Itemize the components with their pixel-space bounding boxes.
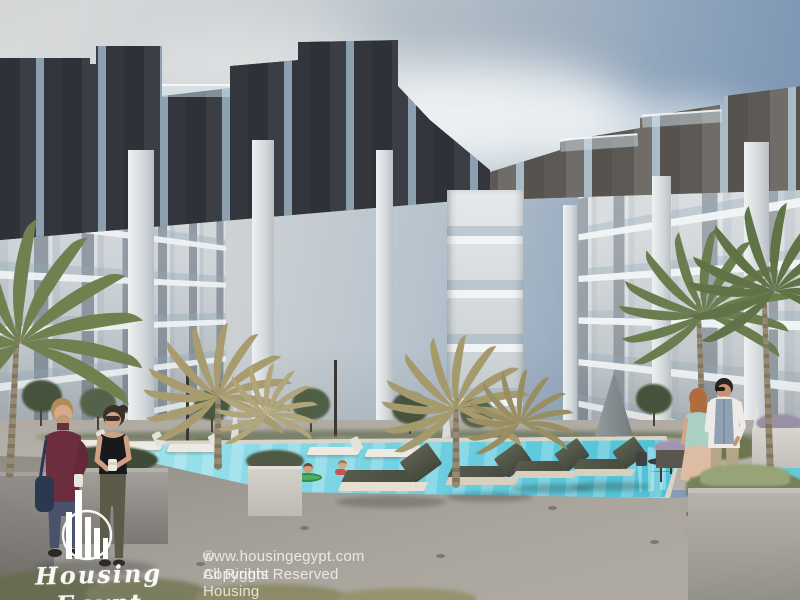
child-swimmer-head <box>338 460 347 469</box>
palm-tree-green <box>680 202 800 344</box>
tree-trunk <box>653 412 655 426</box>
deck-drain <box>548 506 557 510</box>
sun-lounger-frame <box>512 471 577 478</box>
deck-drain <box>300 526 309 530</box>
child-swimmer-head <box>303 463 313 473</box>
deck-drain <box>650 540 659 544</box>
lounger-shadow <box>336 496 446 508</box>
sun-lounger-frame <box>572 469 635 476</box>
tree-canopy <box>636 384 672 414</box>
white-planter-cube <box>248 466 302 516</box>
palm-tree-dry <box>462 368 578 456</box>
palm-tree-dry <box>212 362 322 446</box>
rooftop-glass-railing <box>162 84 230 97</box>
palm-tree-green <box>0 218 155 418</box>
lounger-shadow <box>572 482 650 491</box>
brand-script-text: Housing Egypt <box>13 558 184 600</box>
bistro-chair-dark <box>636 452 647 466</box>
sun-lounger-frame <box>338 482 428 491</box>
large-concrete-planter <box>688 488 800 600</box>
architectural-rendering-scene: Housing Egypt © Copyright Housing Egypt.… <box>0 0 800 600</box>
lounger-shadow <box>446 492 532 502</box>
deck-drain <box>436 554 445 558</box>
planter-grass <box>700 464 790 486</box>
copyright-line2: www.housingegypt.com All Rights Reserved <box>203 548 365 583</box>
